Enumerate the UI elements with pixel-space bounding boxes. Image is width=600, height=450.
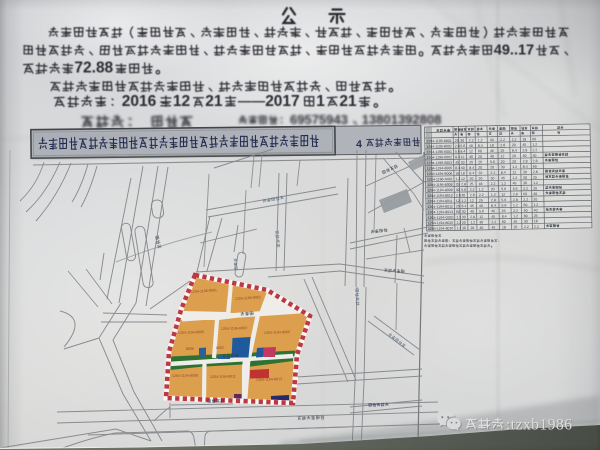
- svg-text:8.4: 8.4: [512, 149, 517, 153]
- svg-text:40: 40: [490, 138, 494, 142]
- svg-text:30: 30: [523, 170, 527, 174]
- svg-text:45: 45: [455, 161, 459, 165]
- svg-text:20: 20: [469, 177, 473, 181]
- svg-text:21: 21: [339, 93, 357, 110]
- svg-text:12: 12: [469, 149, 473, 153]
- svg-text:2.2: 2.2: [534, 225, 539, 229]
- svg-text:1204-1194-8010: 1204-1194-8010: [427, 194, 453, 198]
- svg-text:40: 40: [490, 154, 494, 158]
- svg-text:18: 18: [534, 219, 538, 223]
- svg-text:25: 25: [478, 160, 482, 164]
- svg-text:25: 25: [500, 149, 504, 153]
- svg-text:60: 60: [478, 149, 482, 153]
- svg-text:1.2: 1.2: [461, 199, 466, 203]
- svg-text:25: 25: [456, 204, 460, 208]
- svg-text:40: 40: [533, 154, 537, 158]
- svg-text:2.8: 2.8: [522, 148, 527, 152]
- svg-text:45: 45: [470, 204, 474, 208]
- svg-text:25: 25: [502, 209, 506, 213]
- svg-text:2.8: 2.8: [456, 193, 461, 197]
- svg-text:5.6: 5.6: [460, 144, 465, 148]
- svg-text:5.6: 5.6: [455, 150, 460, 154]
- svg-text:8.4: 8.4: [501, 171, 506, 175]
- svg-text:8.4: 8.4: [491, 204, 496, 208]
- svg-text:5.6: 5.6: [490, 160, 495, 164]
- svg-text:5.6: 5.6: [501, 187, 506, 191]
- svg-text:25: 25: [533, 176, 537, 180]
- svg-text:20: 20: [462, 221, 466, 225]
- svg-text:1204-1195-8001: 1204-1195-8001: [426, 139, 452, 143]
- svg-text:12: 12: [470, 199, 474, 203]
- svg-text:25: 25: [456, 182, 460, 186]
- svg-text:2017: 2017: [265, 93, 299, 110]
- svg-text:45: 45: [513, 220, 517, 224]
- svg-text:30: 30: [524, 219, 528, 223]
- svg-text:1.2: 1.2: [491, 193, 496, 197]
- svg-text:20: 20: [478, 177, 482, 181]
- svg-text:18: 18: [461, 171, 465, 175]
- svg-text:8.4: 8.4: [523, 165, 528, 169]
- svg-text:30: 30: [523, 181, 527, 185]
- svg-text:2.8: 2.8: [523, 159, 528, 163]
- svg-text:25: 25: [479, 198, 483, 202]
- svg-text:2.2: 2.2: [512, 138, 517, 142]
- svg-text:18: 18: [490, 143, 494, 147]
- svg-text:1204-1196-A001: 1204-1196-A001: [427, 177, 453, 181]
- svg-text:40: 40: [470, 210, 474, 214]
- svg-text:30: 30: [462, 226, 466, 230]
- svg-text:30: 30: [462, 215, 466, 219]
- svg-text:25: 25: [534, 214, 538, 218]
- svg-text:5.6: 5.6: [479, 209, 484, 213]
- svg-text:12: 12: [501, 193, 505, 197]
- svg-text:1204-1196-6001: 1204-1196-6001: [426, 150, 452, 154]
- svg-text:20: 20: [461, 161, 465, 165]
- svg-text:40: 40: [523, 154, 527, 158]
- svg-text:1204-1194-8005: 1204-1194-8005: [427, 166, 453, 170]
- svg-text:40: 40: [533, 192, 537, 196]
- svg-text:1.2: 1.2: [533, 181, 538, 185]
- svg-text:20: 20: [490, 165, 494, 169]
- svg-text:1.2: 1.2: [501, 182, 506, 186]
- svg-text:2.8: 2.8: [491, 198, 496, 202]
- svg-text:20: 20: [470, 226, 474, 230]
- svg-text:2.8: 2.8: [500, 143, 505, 147]
- svg-text:2.2: 2.2: [479, 193, 484, 197]
- svg-text:8.4: 8.4: [455, 155, 460, 159]
- svg-text:6002: 6002: [216, 346, 224, 350]
- svg-text:1204-1194-8008: 1204-1194-8008: [427, 183, 453, 187]
- svg-text:12: 12: [456, 199, 460, 203]
- svg-text:12: 12: [173, 93, 190, 110]
- svg-text:2.8: 2.8: [513, 192, 518, 196]
- svg-text:1204-1196-6002: 1204-1196-6002: [427, 155, 453, 159]
- svg-text:2.2: 2.2: [490, 171, 495, 175]
- svg-text:1.2: 1.2: [533, 203, 538, 207]
- svg-text:45: 45: [501, 176, 505, 180]
- svg-text:25: 25: [470, 182, 474, 186]
- svg-text:12: 12: [512, 170, 516, 174]
- svg-text:45: 45: [491, 209, 495, 213]
- svg-text:2.8: 2.8: [533, 170, 538, 174]
- svg-text:45: 45: [491, 215, 495, 219]
- svg-text:40: 40: [534, 208, 538, 212]
- svg-text:1204-1196-6003: 1204-1196-6003: [427, 161, 453, 165]
- svg-text:2.2: 2.2: [470, 188, 475, 192]
- svg-text:25: 25: [469, 160, 473, 164]
- svg-text:2.8: 2.8: [513, 198, 518, 202]
- svg-text:60: 60: [523, 203, 527, 207]
- svg-text:1.2: 1.2: [512, 165, 517, 169]
- svg-text:21: 21: [205, 93, 223, 110]
- svg-text:40: 40: [461, 166, 465, 170]
- svg-text:60: 60: [502, 220, 506, 224]
- svg-text:8.4: 8.4: [502, 214, 507, 218]
- svg-text:1204-1194-8006: 1204-1194-8006: [427, 172, 453, 176]
- svg-text:1204-1194-8008: 1204-1194-8008: [172, 374, 198, 378]
- svg-text:4: 4: [356, 138, 362, 150]
- svg-text:1.2: 1.2: [479, 187, 484, 191]
- svg-text:30: 30: [490, 176, 494, 180]
- svg-text:2.2: 2.2: [524, 225, 529, 229]
- svg-text:1204-1194-8011: 1204-1194-8011: [210, 375, 236, 379]
- svg-text:60: 60: [456, 210, 460, 214]
- svg-text:2.2: 2.2: [491, 182, 496, 186]
- svg-text:45: 45: [490, 149, 494, 153]
- svg-text:1204-1194-8013: 1204-1194-8013: [428, 210, 454, 214]
- svg-text:20: 20: [513, 225, 517, 229]
- svg-text:20: 20: [478, 171, 482, 175]
- svg-text:60: 60: [533, 165, 537, 169]
- svg-text:1.2: 1.2: [455, 177, 460, 181]
- svg-text:20: 20: [533, 186, 537, 190]
- svg-text:45: 45: [491, 226, 495, 230]
- svg-text:1204-1195-8002: 1204-1195-8002: [426, 144, 452, 148]
- svg-text:18: 18: [502, 225, 506, 229]
- svg-text:8.4: 8.4: [469, 171, 474, 175]
- svg-text:1.2: 1.2: [478, 138, 483, 142]
- svg-text:60: 60: [524, 214, 528, 218]
- svg-text:1.2: 1.2: [513, 214, 518, 218]
- svg-text::tzxb1986: :tzxb1986: [506, 417, 573, 434]
- svg-text:1204-1194-8009: 1204-1194-8009: [427, 188, 453, 192]
- svg-text:30: 30: [501, 165, 505, 169]
- svg-text:20: 20: [533, 197, 537, 201]
- svg-text:45: 45: [522, 143, 526, 147]
- svg-text:30: 30: [461, 193, 465, 197]
- svg-text:2.8: 2.8: [455, 144, 460, 148]
- svg-text:45: 45: [513, 181, 517, 185]
- svg-text:2.2: 2.2: [513, 209, 518, 213]
- svg-text:5.6: 5.6: [501, 203, 506, 207]
- svg-text:40: 40: [524, 209, 528, 213]
- svg-text:40: 40: [469, 144, 473, 148]
- svg-text:30: 30: [460, 139, 464, 143]
- svg-text:2016: 2016: [122, 93, 157, 110]
- svg-text:2.8: 2.8: [470, 193, 475, 197]
- svg-text:18: 18: [455, 172, 459, 176]
- svg-text:20: 20: [512, 154, 516, 158]
- svg-text:30: 30: [469, 155, 473, 159]
- svg-text:30: 30: [456, 188, 460, 192]
- svg-text:12: 12: [461, 177, 465, 181]
- svg-text:18: 18: [479, 182, 483, 186]
- svg-text:60: 60: [523, 192, 527, 196]
- svg-text:8.4: 8.4: [460, 150, 465, 154]
- svg-text:1.2: 1.2: [513, 203, 518, 207]
- svg-text:2.8: 2.8: [533, 159, 538, 163]
- svg-text:13801392808: 13801392808: [362, 112, 442, 127]
- svg-text:8.4: 8.4: [461, 204, 466, 208]
- svg-text:20: 20: [478, 155, 482, 159]
- svg-text:2.2: 2.2: [500, 138, 505, 142]
- svg-text:1.2: 1.2: [512, 176, 517, 180]
- svg-text:8006: 8006: [186, 347, 194, 351]
- svg-text:1.2: 1.2: [456, 226, 461, 230]
- svg-text:2.2: 2.2: [532, 148, 537, 152]
- svg-text:2.8: 2.8: [470, 215, 475, 219]
- svg-text:2.2: 2.2: [469, 138, 474, 142]
- svg-text:30: 30: [462, 210, 466, 214]
- svg-text:2.8: 2.8: [461, 182, 466, 186]
- svg-text:1204-1194-8011: 1204-1194-8011: [427, 199, 452, 203]
- svg-text:18: 18: [522, 137, 526, 141]
- svg-text:30: 30: [523, 176, 527, 180]
- svg-text:1204-1194-8016: 1204-1194-8016: [428, 226, 454, 230]
- svg-text:5.6: 5.6: [461, 188, 466, 192]
- svg-text:1.2: 1.2: [456, 221, 461, 225]
- svg-text:1: 1: [316, 93, 325, 110]
- svg-text:40: 40: [479, 226, 483, 230]
- svg-text:12: 12: [479, 215, 483, 219]
- svg-text:1204-1194-8015: 1204-1194-8015: [428, 221, 454, 225]
- svg-text:2.2: 2.2: [491, 220, 496, 224]
- svg-text:1.2: 1.2: [456, 215, 461, 219]
- svg-text:12: 12: [501, 154, 505, 158]
- svg-text:72.88: 72.88: [74, 60, 113, 77]
- svg-text:12: 12: [461, 155, 465, 159]
- svg-text:5.6: 5.6: [501, 198, 506, 202]
- svg-text:25: 25: [455, 139, 459, 143]
- svg-text:20: 20: [491, 187, 495, 191]
- svg-text:1204-1194-8012: 1204-1194-8012: [427, 204, 453, 208]
- svg-text:20: 20: [478, 166, 482, 170]
- svg-text:8.4: 8.4: [455, 166, 460, 170]
- svg-text:1.2: 1.2: [532, 143, 537, 147]
- svg-text:20: 20: [512, 143, 516, 147]
- svg-text:1.2: 1.2: [470, 220, 475, 224]
- svg-text:8.4: 8.4: [478, 144, 483, 148]
- svg-text:40: 40: [479, 204, 483, 208]
- svg-text:8.4: 8.4: [469, 166, 474, 170]
- svg-text:60: 60: [532, 137, 536, 141]
- svg-text:69575943: 69575943: [290, 112, 348, 127]
- svg-text:1204-1194-G001: 1204-1194-G001: [428, 215, 454, 220]
- svg-text:20: 20: [512, 160, 516, 164]
- svg-text:20: 20: [501, 160, 505, 164]
- svg-text:5.6: 5.6: [513, 187, 518, 191]
- svg-text:2.2: 2.2: [523, 187, 528, 191]
- svg-text:2.2: 2.2: [523, 198, 528, 202]
- svg-text:30: 30: [479, 220, 483, 224]
